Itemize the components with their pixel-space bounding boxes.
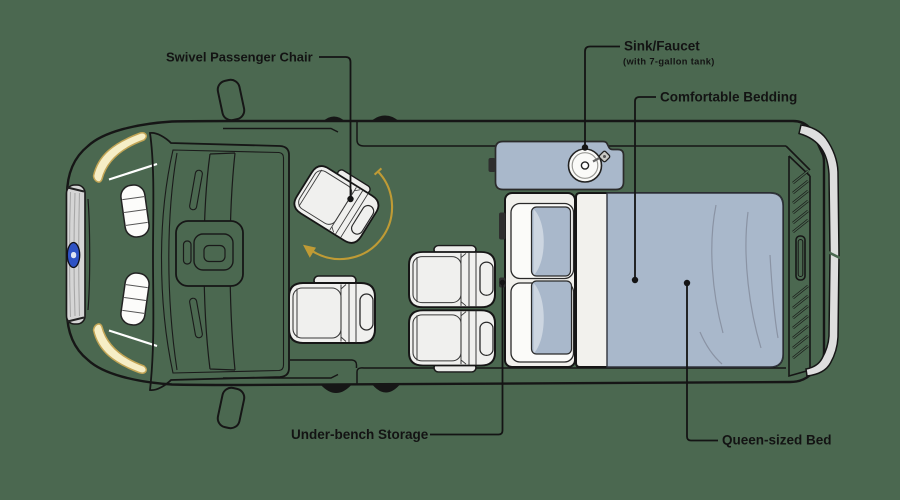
svg-text:Swivel Passenger Chair: Swivel Passenger Chair: [166, 50, 313, 65]
svg-text:Comfortable Bedding: Comfortable Bedding: [660, 90, 797, 105]
svg-text:(with 7-gallon tank): (with 7-gallon tank): [623, 57, 715, 67]
svg-text:Sink/Faucet: Sink/Faucet: [624, 39, 700, 54]
svg-text:Queen-sized Bed: Queen-sized Bed: [722, 433, 832, 448]
svg-text:Under-bench Storage: Under-bench Storage: [291, 427, 429, 442]
